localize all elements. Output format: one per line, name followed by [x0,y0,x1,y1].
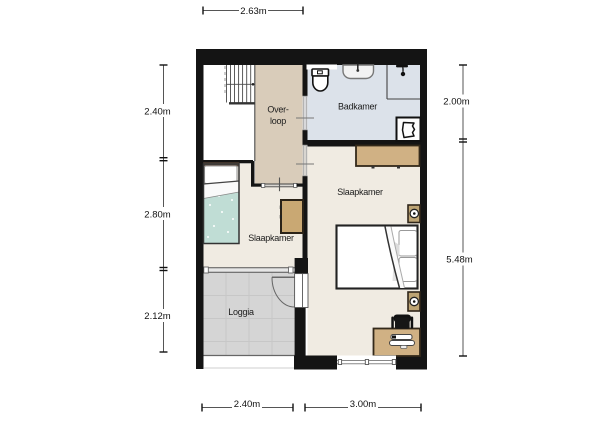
svg-text:Slaapkamer: Slaapkamer [248,233,294,243]
svg-text:5.48m: 5.48m [446,254,472,265]
svg-text:2.40m: 2.40m [234,399,260,410]
svg-text:Loggia: Loggia [228,307,254,317]
svg-text:2.40m: 2.40m [144,106,170,117]
svg-text:3.00m: 3.00m [350,399,376,410]
svg-text:Over-: Over- [267,104,289,114]
svg-text:2.00m: 2.00m [443,96,469,107]
svg-text:2.12m: 2.12m [144,311,170,322]
svg-text:2.63m: 2.63m [240,6,266,17]
svg-text:Badkamer: Badkamer [338,102,377,112]
svg-text:loop: loop [270,116,286,126]
svg-text:Slaapkamer: Slaapkamer [337,187,383,197]
svg-text:2.80m: 2.80m [144,209,170,220]
